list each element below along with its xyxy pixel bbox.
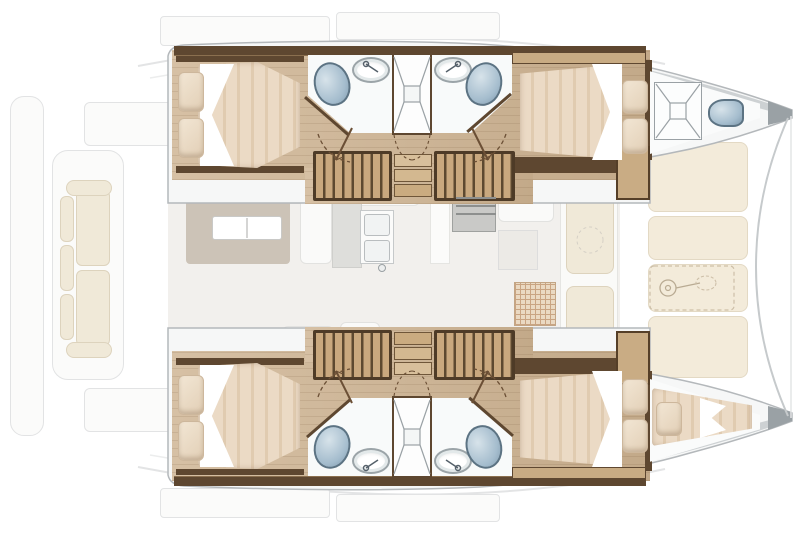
shower-drain-pattern <box>394 57 430 474</box>
hatch-cross-pattern <box>656 84 700 138</box>
door-swing-icons <box>318 128 506 403</box>
galley-icons <box>247 198 603 272</box>
catamaran-floorplan <box>0 0 800 533</box>
faucet-icons <box>364 62 461 471</box>
bow-rigging-lines <box>756 116 791 418</box>
detail-linework <box>0 0 800 533</box>
windlass-icon <box>650 266 734 310</box>
